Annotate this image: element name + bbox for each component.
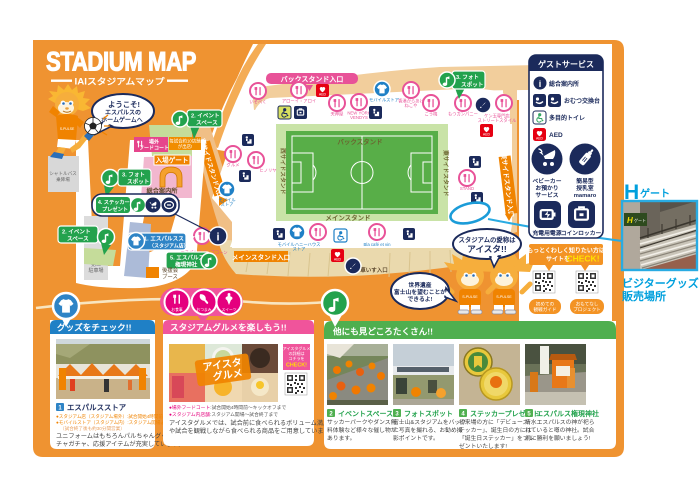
svg-text:や試合を観戦しながら食べられる商品をご用意しています。: や試合を観戦しながら食べられる商品をご用意しています。: [169, 427, 335, 435]
svg-text:エスパルス権現神社: エスパルス権現神社: [536, 409, 599, 418]
svg-text:S-PULSE: S-PULSE: [496, 295, 512, 299]
svg-text:清水エスパルスの神が祀ら: 清水エスパルスの神が祀ら: [525, 418, 595, 426]
svg-text:ゲストサービス: ゲストサービス: [538, 59, 594, 69]
svg-text:お食事: お食事: [171, 307, 183, 312]
svg-text:ゲート: ゲート: [640, 187, 670, 200]
svg-text:●スタジアム内店舗:スタジアム開場～試合終了まで: ●スタジアム内店舗:スタジアム開場～試合終了まで: [169, 411, 278, 418]
svg-text:3. フォト: 3. フォト: [122, 172, 145, 179]
svg-text:●場外フードコート:試合開始4時間前～キックオフまで: ●場外フードコート:試合開始4時間前～キックオフまで: [169, 404, 286, 411]
svg-text:あります。: あります。: [327, 435, 355, 442]
svg-text:コインロッカー: コインロッカー: [561, 230, 602, 237]
svg-text:4. ステッカー: 4. ステッカー: [98, 199, 130, 206]
svg-text:バックスタンド: バックスタンド: [337, 137, 382, 146]
svg-text:おつまみ: おつまみ: [196, 307, 211, 312]
svg-text:CHECK!: CHECK!: [566, 254, 599, 264]
svg-text:3. フォト: 3. フォト: [456, 74, 479, 81]
svg-text:簡易型: 簡易型: [576, 177, 594, 185]
svg-text:入場ゲート: 入場ゲート: [156, 156, 189, 165]
svg-text:ストリートスタイル: ストリートスタイル: [478, 117, 517, 124]
svg-text:お預かり: お預かり: [535, 184, 558, 192]
svg-text:mamaro: mamaro: [574, 193, 597, 199]
svg-text:駐車場: 駐車場: [88, 267, 103, 274]
svg-text:おもてなし: おもてなし: [576, 301, 599, 307]
svg-text:メインスタンド: メインスタンド: [325, 213, 370, 222]
svg-text:料体験など様々な催し物が: 料体験など様々な催し物が: [327, 426, 397, 434]
svg-text:ゲート: ゲート: [634, 217, 646, 223]
svg-text:販売場所: 販売場所: [622, 289, 666, 303]
svg-text:Bla café et vin: Bla café et vin: [364, 242, 392, 247]
svg-text:ビジターグッズ: ビジターグッズ: [622, 276, 699, 290]
svg-text:AED: AED: [549, 132, 563, 139]
svg-text:（スタジアム店）: （スタジアム店）: [149, 243, 189, 250]
svg-text:（試合終了後も約30分間営業）: （試合終了後も約30分間営業）: [60, 425, 125, 432]
svg-text:ようこそ!: ようこそ!: [108, 100, 140, 109]
svg-text:車いす入口: 車いす入口: [360, 266, 388, 274]
svg-text:いそべく: いそべく: [249, 99, 266, 106]
svg-text:5. エスパルス: 5. エスパルス: [170, 254, 205, 262]
svg-text:富士山&スタジアムをバック: 富士山&スタジアムをバック: [393, 418, 466, 426]
svg-text:天神屋: 天神屋: [331, 111, 345, 118]
svg-text:グルメ: グルメ: [227, 162, 240, 169]
svg-text:プレゼント: プレゼント: [102, 205, 128, 213]
svg-text:前に勝利を願いましょう!: 前に勝利を願いましょう!: [525, 434, 591, 442]
svg-text:スペース: スペース: [196, 120, 218, 127]
svg-text:S-PULSE: S-PULSE: [462, 295, 478, 299]
svg-text:スポット: スポット: [127, 178, 149, 186]
svg-text:富士山を望むことが: 富士山を望むことが: [394, 288, 446, 296]
svg-text:アイスタ!!: アイスタ!!: [467, 243, 507, 254]
svg-text:ベビーカー: ベビーカー: [533, 177, 562, 185]
svg-text:権現神社: 権現神社: [175, 261, 198, 269]
svg-text:総合案内所: 総合案内所: [549, 80, 579, 88]
svg-text:他にも見どころたくさん!!: 他にも見どころたくさん!!: [332, 326, 433, 337]
svg-text:コチラを: コチラを: [289, 355, 305, 361]
svg-text:テッカー」、誕生日の方には: テッカー」、誕生日の方には: [459, 426, 532, 434]
svg-text:に写真を撮れる、お勧め撮: に写真を撮れる、お勧め撮: [393, 426, 463, 434]
svg-text:i: i: [539, 79, 542, 89]
svg-text:ねこや: ねこや: [405, 102, 418, 109]
svg-text:場外: 場外: [148, 139, 159, 146]
svg-text:IAIスタジアムマップ: IAIスタジアムマップ: [75, 76, 165, 87]
svg-text:おむつ交換台: おむつ交換台: [564, 97, 600, 105]
svg-text:スイーツ: スイーツ: [221, 307, 236, 312]
svg-text:影ポイントです。: 影ポイントです。: [393, 434, 439, 442]
svg-text:ゼントいたします!: ゼントいたします!: [459, 442, 507, 450]
svg-text:STAND: STAND: [460, 186, 474, 191]
svg-text:1. エスパルスストア: 1. エスパルスストア: [144, 235, 195, 243]
svg-text:サッカーパークやダンス無: サッカーパークやダンス無: [327, 418, 397, 426]
svg-text:こう梅: こう梅: [425, 111, 439, 118]
svg-text:i: i: [216, 232, 219, 244]
svg-text:メインスタンド入口: メインスタンド入口: [232, 253, 290, 262]
svg-text:乗降場: 乗降場: [56, 176, 70, 183]
svg-text:スタジアムグルメを楽しもう!!: スタジアムグルメを楽しもう!!: [170, 322, 287, 333]
svg-text:ホームゲームへ: ホームゲームへ: [101, 116, 143, 124]
svg-text:アイスタグルメでは、試合前に食べられるボリューム満点の商品: アイスタグルメでは、試合前に食べられるボリューム満点の商品: [169, 419, 348, 427]
svg-text:できるよ!: できるよ!: [407, 295, 432, 303]
svg-text:スポット: スポット: [461, 81, 483, 89]
svg-text:充電用電源: 充電用電源: [533, 229, 562, 237]
svg-text:AED: AED: [334, 258, 342, 262]
svg-text:ヒノリヤ: ヒノリヤ: [259, 168, 276, 173]
svg-text:授乳室: 授乳室: [576, 184, 594, 192]
svg-text:STADIUM MAP: STADIUM MAP: [46, 47, 196, 77]
svg-text:2. イベント: 2. イベント: [62, 229, 91, 236]
svg-text:れていると噂の神社。試合: れていると噂の神社。試合: [525, 426, 595, 434]
svg-text:後援会: 後援会: [162, 266, 179, 274]
svg-text:AED: AED: [536, 137, 544, 141]
svg-text:世界遺産: 世界遺産: [408, 281, 431, 289]
svg-text:AED: AED: [319, 93, 327, 97]
svg-text:ブース: ブース: [162, 273, 178, 281]
svg-text:西サイドスタンド: 西サイドスタンド: [279, 148, 287, 195]
svg-text:多目的トイレ: 多目的トイレ: [549, 114, 585, 122]
svg-text:観戦ガイド: 観戦ガイド: [534, 306, 557, 313]
svg-text:AED: AED: [483, 133, 491, 137]
svg-text:H: H: [627, 216, 633, 225]
svg-text:フードコート: フードコート: [139, 146, 169, 152]
svg-text:サービス: サービス: [535, 191, 558, 199]
svg-text:「誕生日ステッカー」をプレ: 「誕生日ステッカー」をプレ: [459, 434, 535, 442]
svg-text:スタジアムの愛称は: スタジアムの愛称は: [458, 235, 516, 244]
svg-text:2. イベント: 2. イベント: [191, 113, 220, 120]
svg-text:東サイドスタンド: 東サイドスタンド: [442, 150, 450, 197]
svg-text:VENDYS: VENDYS: [350, 115, 368, 120]
svg-text:初来場の方に「デビュース: 初来場の方に「デビュース: [459, 418, 528, 426]
svg-text:スペース: スペース: [67, 236, 89, 243]
svg-text:イベントスペース: イベントスペース: [338, 410, 393, 418]
svg-text:シャトルバス: シャトルバス: [49, 171, 77, 176]
svg-text:CHECK!: CHECK!: [286, 363, 307, 369]
svg-text:●スタジアム店（スタジアム場外）:試合開始4時間前OPEN: ●スタジアム店（スタジアム場外）:試合開始4時間前OPEN: [56, 413, 176, 420]
svg-text:フォトスポット: フォトスポット: [404, 409, 453, 418]
svg-text:エスパルスストア: エスパルスストア: [67, 403, 127, 412]
svg-text:が出店!: が出店!: [178, 143, 192, 150]
svg-text:S-PULSE: S-PULSE: [60, 127, 75, 131]
svg-text:エスパルスの: エスパルスの: [105, 109, 141, 117]
svg-text:バックスタンド入口: バックスタンド入口: [281, 75, 344, 84]
